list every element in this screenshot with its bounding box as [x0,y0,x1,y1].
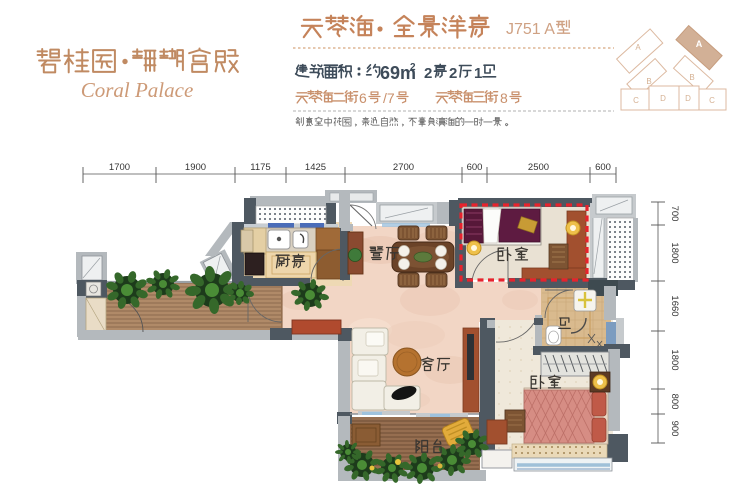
svg-text:2500: 2500 [528,162,549,173]
svg-text:D: D [685,94,691,103]
svg-text:B: B [689,73,694,82]
svg-text:A: A [635,43,641,52]
svg-text:C: C [633,96,639,105]
svg-text:2: 2 [424,65,432,82]
svg-text:700: 700 [669,206,680,222]
svg-text:2: 2 [449,65,457,82]
svg-text:1800: 1800 [669,349,680,370]
svg-text:900: 900 [669,421,680,437]
svg-text:/7: /7 [383,90,395,106]
svg-text:600: 600 [467,162,483,173]
svg-text:8: 8 [500,90,508,106]
svg-text:1800: 1800 [669,242,680,263]
svg-text:C: C [709,96,715,105]
svg-text:Coral Palace: Coral Palace [81,78,194,102]
svg-text:1900: 1900 [185,162,206,173]
svg-text:1: 1 [474,65,482,82]
svg-text:2700: 2700 [393,162,414,173]
svg-text:1425: 1425 [305,162,326,173]
svg-text:6: 6 [359,90,367,106]
svg-text:J751 A: J751 A [506,21,555,38]
svg-text:D: D [660,94,666,103]
svg-text:2: 2 [410,62,416,73]
svg-text:1700: 1700 [109,162,130,173]
svg-text:800: 800 [669,394,680,410]
svg-text:1175: 1175 [250,162,270,173]
svg-text:B: B [646,77,651,86]
svg-text:1660: 1660 [669,295,680,316]
svg-text:A: A [696,39,703,49]
svg-text:600: 600 [595,162,611,173]
